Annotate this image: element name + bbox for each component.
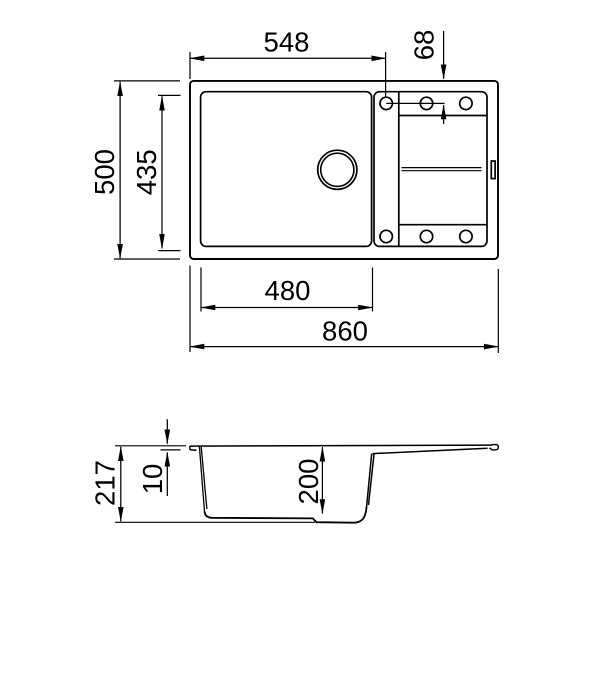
svg-text:480: 480 bbox=[265, 275, 311, 306]
svg-text:860: 860 bbox=[322, 316, 368, 347]
svg-text:68: 68 bbox=[409, 30, 440, 61]
svg-text:10: 10 bbox=[137, 464, 168, 495]
svg-text:435: 435 bbox=[131, 149, 162, 195]
svg-text:500: 500 bbox=[89, 149, 120, 195]
svg-text:548: 548 bbox=[264, 27, 310, 58]
svg-text:200: 200 bbox=[293, 459, 324, 505]
svg-text:217: 217 bbox=[90, 460, 121, 506]
